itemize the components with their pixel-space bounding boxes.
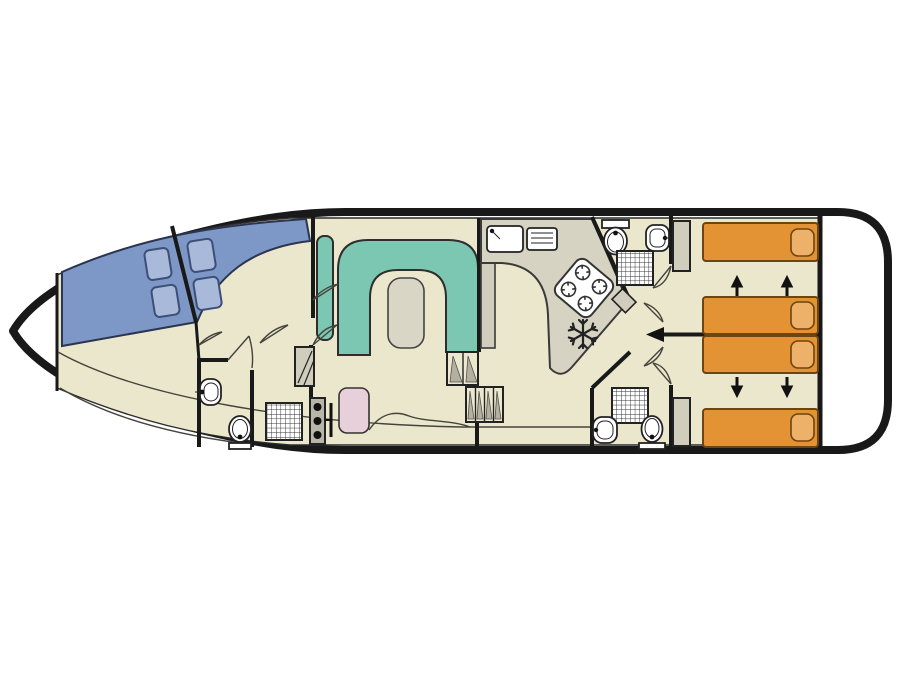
boat-floor-plan	[0, 0, 901, 676]
wardrobe-icon	[295, 347, 314, 386]
galley-sink	[487, 226, 557, 252]
window-pane-icon	[144, 247, 172, 280]
window-pane-icon	[151, 284, 180, 318]
pillow	[791, 229, 814, 256]
pillow	[791, 302, 814, 329]
sink-icon	[646, 225, 671, 251]
window-pane-icon	[187, 238, 217, 273]
wardrobe-icon	[673, 398, 690, 446]
salon-table	[388, 278, 424, 348]
shower-grid-icon	[266, 403, 302, 440]
shower-grid-icon	[612, 388, 648, 423]
bow-washroom-toilet	[229, 416, 251, 449]
sink-icon	[590, 417, 617, 443]
window-pane-icon	[193, 276, 223, 311]
toilet-icon	[639, 416, 665, 449]
wardrobe-icon	[673, 221, 690, 271]
pillow	[791, 341, 814, 368]
helm-seat	[339, 388, 369, 433]
shower-grid-icon	[617, 251, 653, 285]
floor-plan-canvas	[0, 0, 901, 676]
pillow	[791, 414, 814, 441]
toilet-icon	[602, 220, 629, 255]
sink-drainer-icon	[527, 228, 557, 250]
